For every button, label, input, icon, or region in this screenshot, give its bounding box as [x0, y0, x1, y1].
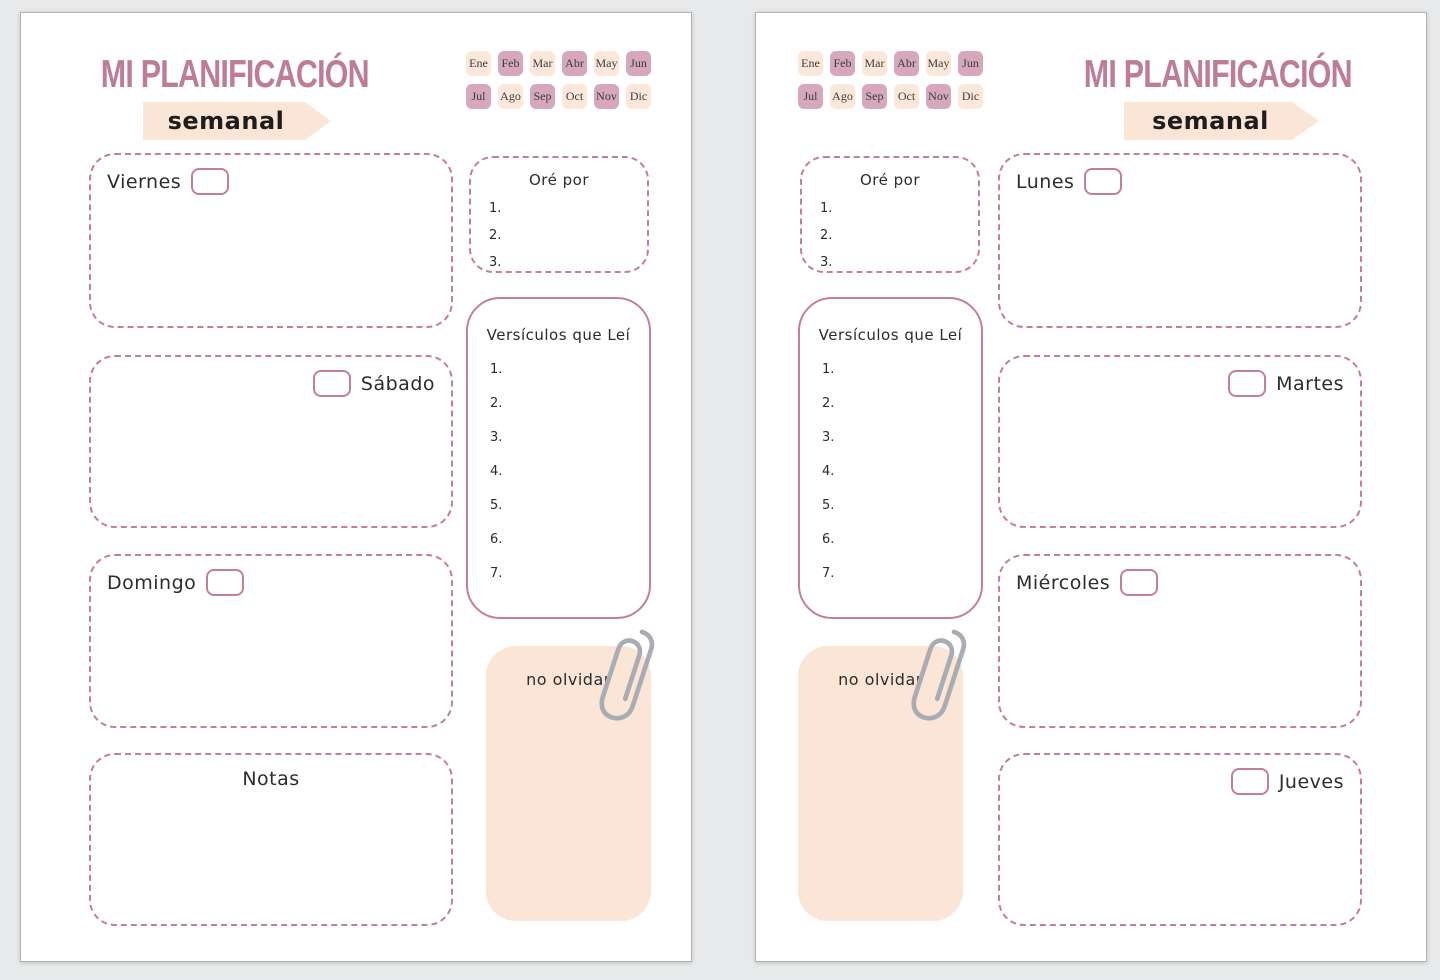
semanal-banner-label: semanal — [168, 107, 307, 135]
month-chip-nov[interactable]: Nov — [926, 84, 951, 109]
verses-title: Versículos que Leí — [468, 326, 649, 344]
pray-title: Oré por — [471, 171, 647, 189]
day-box-martes[interactable]: Martes — [998, 355, 1362, 528]
day-box-sabado[interactable]: Sábado — [89, 355, 453, 528]
martes-checkbox[interactable] — [1228, 370, 1266, 397]
month-chip-ago[interactable]: Ago — [498, 84, 523, 109]
pray-box[interactable]: Oré por 1. 2. 3. — [469, 156, 649, 273]
verses-item: 4. — [490, 464, 649, 479]
verses-item: 1. — [490, 362, 649, 377]
day-header: Notas — [91, 755, 451, 790]
day-label-martes: Martes — [1276, 373, 1344, 395]
day-header: Sábado — [91, 357, 451, 397]
day-header: Viernes — [91, 155, 451, 195]
verses-item: 2. — [490, 396, 649, 411]
day-box-jueves[interactable]: Jueves — [998, 753, 1362, 926]
page-right: Ene Feb Mar Abr May Jun Jul Ago Sep Oct … — [755, 12, 1427, 962]
verses-item: 1. — [822, 362, 981, 377]
day-header: Miércoles — [1000, 556, 1360, 596]
verses-box[interactable]: Versículos que Leí 1. 2. 3. 4. 5. 6. 7. — [798, 297, 983, 619]
page-title-text: MI PLANIFICACIÓN — [101, 53, 369, 97]
day-label-viernes: Viernes — [107, 171, 181, 193]
day-header: Martes — [1000, 357, 1360, 397]
month-chip-sep[interactable]: Sep — [530, 84, 555, 109]
semanal-banner: semanal — [143, 102, 331, 140]
month-chip-oct[interactable]: Oct — [894, 84, 919, 109]
planner-canvas: { "colors": { "background": "#e8e9ea", "… — [0, 0, 1440, 980]
month-chip-jun[interactable]: Jun — [958, 51, 983, 76]
miercoles-checkbox[interactable] — [1120, 569, 1158, 596]
verses-items: 1. 2. 3. 4. 5. 6. 7. — [800, 344, 981, 581]
month-chip-abr[interactable]: Abr — [894, 51, 919, 76]
verses-title: Versículos que Leí — [800, 326, 981, 344]
day-label-miercoles: Miércoles — [1016, 572, 1110, 594]
month-chip-jul[interactable]: Jul — [798, 84, 823, 109]
sabado-checkbox[interactable] — [313, 370, 351, 397]
month-chip-may[interactable]: May — [594, 51, 619, 76]
month-chip-oct[interactable]: Oct — [562, 84, 587, 109]
month-chip-feb[interactable]: Feb — [498, 51, 523, 76]
pray-item: 2. — [489, 228, 647, 243]
verses-item: 6. — [490, 532, 649, 547]
month-chip-abr[interactable]: Abr — [562, 51, 587, 76]
month-chip-ene[interactable]: Ene — [798, 51, 823, 76]
viernes-checkbox[interactable] — [191, 168, 229, 195]
semanal-banner: semanal — [1124, 102, 1319, 140]
month-chip-dic[interactable]: Dic — [958, 84, 983, 109]
month-chip-jun[interactable]: Jun — [626, 51, 651, 76]
day-box-miercoles[interactable]: Miércoles — [998, 554, 1362, 728]
verses-item: 5. — [822, 498, 981, 513]
verses-item: 6. — [822, 532, 981, 547]
pray-title: Oré por — [802, 171, 978, 189]
verses-item: 3. — [822, 430, 981, 445]
month-grid: Ene Feb Mar Abr May Jun Jul Ago Sep Oct … — [466, 51, 651, 109]
lunes-checkbox[interactable] — [1084, 168, 1122, 195]
day-box-viernes[interactable]: Viernes — [89, 153, 453, 328]
verses-items: 1. 2. 3. 4. 5. 6. 7. — [468, 344, 649, 581]
verses-item: 3. — [490, 430, 649, 445]
semanal-banner-label: semanal — [1152, 107, 1291, 135]
domingo-checkbox[interactable] — [206, 569, 244, 596]
day-label-jueves: Jueves — [1279, 771, 1344, 793]
verses-item: 5. — [490, 498, 649, 513]
pray-box[interactable]: Oré por 1. 2. 3. — [800, 156, 980, 273]
month-chip-may[interactable]: May — [926, 51, 951, 76]
month-chip-jul[interactable]: Jul — [466, 84, 491, 109]
jueves-checkbox[interactable] — [1231, 768, 1269, 795]
verses-item: 2. — [822, 396, 981, 411]
verses-item: 7. — [490, 566, 649, 581]
pray-item: 2. — [820, 228, 978, 243]
verses-item: 7. — [822, 566, 981, 581]
verses-box[interactable]: Versículos que Leí 1. 2. 3. 4. 5. 6. 7. — [466, 297, 651, 619]
month-grid: Ene Feb Mar Abr May Jun Jul Ago Sep Oct … — [798, 51, 983, 109]
notes-label: Notas — [242, 768, 299, 790]
day-header: Lunes — [1000, 155, 1360, 195]
month-chip-ago[interactable]: Ago — [830, 84, 855, 109]
verses-item: 4. — [822, 464, 981, 479]
pray-items: 1. 2. 3. — [471, 189, 647, 270]
month-chip-nov[interactable]: Nov — [594, 84, 619, 109]
day-box-lunes[interactable]: Lunes — [998, 153, 1362, 328]
pray-items: 1. 2. 3. — [802, 189, 978, 270]
day-header: Domingo — [91, 556, 451, 596]
pray-item: 1. — [489, 201, 647, 216]
day-label-sabado: Sábado — [361, 373, 435, 395]
page-left: MI PLANIFICACIÓN semanal Ene Feb Mar Abr… — [20, 12, 692, 962]
day-box-domingo[interactable]: Domingo — [89, 554, 453, 728]
pray-item: 3. — [820, 255, 978, 270]
month-chip-feb[interactable]: Feb — [830, 51, 855, 76]
month-chip-dic[interactable]: Dic — [626, 84, 651, 109]
notes-box[interactable]: Notas — [89, 753, 453, 926]
month-chip-ene[interactable]: Ene — [466, 51, 491, 76]
day-label-lunes: Lunes — [1016, 171, 1074, 193]
month-chip-mar[interactable]: Mar — [530, 51, 555, 76]
page-title: MI PLANIFICACIÓN — [63, 53, 403, 97]
month-chip-mar[interactable]: Mar — [862, 51, 887, 76]
day-header: Jueves — [1000, 755, 1360, 795]
month-chip-sep[interactable]: Sep — [862, 84, 887, 109]
pray-item: 1. — [820, 201, 978, 216]
pray-item: 3. — [489, 255, 647, 270]
day-label-domingo: Domingo — [107, 572, 196, 594]
page-title: MI PLANIFICACIÓN — [1046, 53, 1386, 97]
page-title-text: MI PLANIFICACIÓN — [1084, 53, 1352, 97]
